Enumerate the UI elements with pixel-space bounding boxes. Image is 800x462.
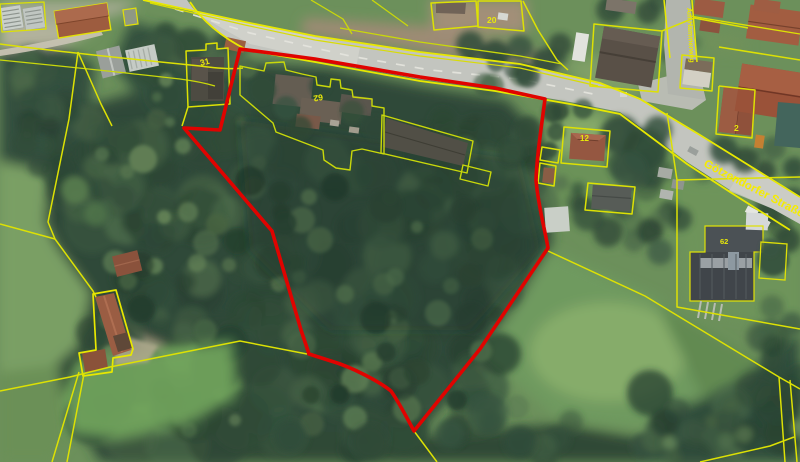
svg-text:20: 20 xyxy=(487,15,497,25)
svg-text:2: 2 xyxy=(734,123,739,133)
svg-text:12: 12 xyxy=(580,134,589,143)
svg-text:62: 62 xyxy=(720,237,728,246)
svg-text:62: 62 xyxy=(312,92,323,104)
